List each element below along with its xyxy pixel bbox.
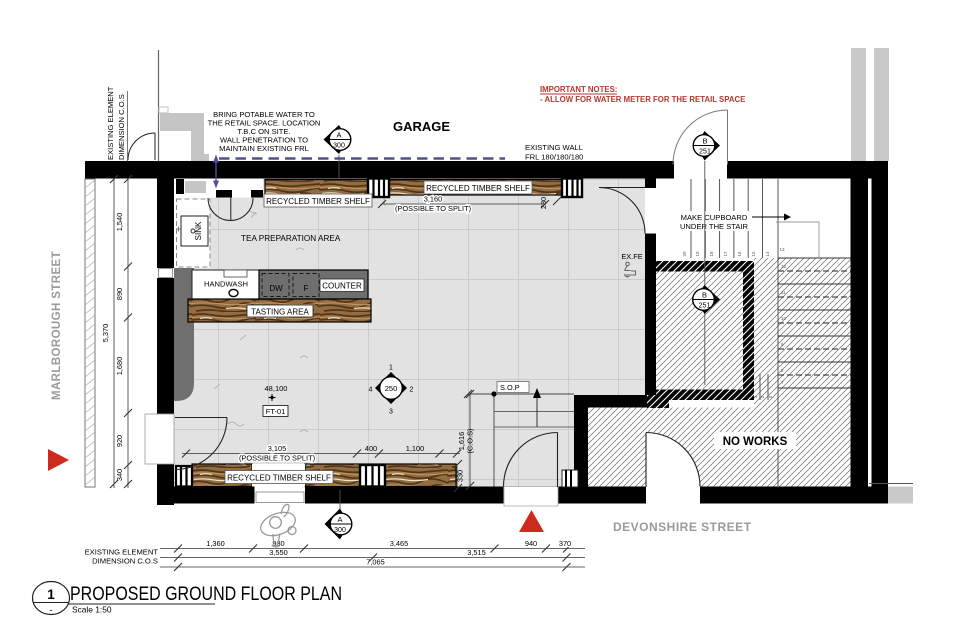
svg-text:EXISTING WALL: EXISTING WALL [525,143,583,152]
svg-text:EX.FE: EX.FE [621,252,642,261]
svg-text:920: 920 [115,435,124,447]
svg-text:MARLBOROUGH STREET: MARLBOROUGH STREET [51,251,63,400]
svg-text:16: 16 [737,251,742,257]
svg-text:1,680: 1,680 [115,357,124,376]
svg-text:300: 300 [333,143,345,150]
svg-text:5,370: 5,370 [101,324,110,343]
svg-text:300: 300 [334,527,346,534]
svg-text:Scale 1:50: Scale 1:50 [72,605,112,615]
svg-text:250: 250 [385,384,398,393]
svg-text:940: 940 [525,539,537,548]
svg-text:890: 890 [115,288,124,300]
svg-text:DW: DW [269,284,283,293]
svg-text:TASTING AREA: TASTING AREA [251,308,309,317]
svg-text:340: 340 [115,469,124,481]
svg-text:(POSSIBLE TO SPLIT): (POSSIBLE TO SPLIT) [395,204,471,213]
svg-text:DIMENSION C.O.S: DIMENSION C.O.S [92,557,158,566]
svg-text:EXISTING ELEMENT: EXISTING ELEMENT [85,548,159,557]
svg-text:1,540: 1,540 [115,213,124,232]
svg-text:3,160: 3,160 [424,195,443,204]
svg-text:A: A [336,131,341,140]
svg-text:18: 18 [709,251,714,257]
svg-text:1,360: 1,360 [206,539,225,548]
svg-text:S.O.P: S.O.P [500,383,520,392]
svg-text:PROPOSED GROUND FLOOR PLAN: PROPOSED GROUND FLOOR PLAN [70,583,342,605]
svg-text:RECYCLED TIMBER SHELF: RECYCLED TIMBER SHELF [266,197,370,206]
svg-text:400: 400 [365,444,377,453]
svg-text:1: 1 [389,365,393,372]
svg-text:TEA PREPARATION AREA: TEA PREPARATION AREA [241,234,341,243]
svg-text:3,105: 3,105 [268,444,287,453]
svg-text:230: 230 [539,197,548,209]
svg-text:3,550: 3,550 [269,548,288,557]
svg-text:12: 12 [781,264,787,269]
svg-text:370: 370 [559,539,571,548]
svg-text:IMPORTANT NOTES:: IMPORTANT NOTES: [540,85,617,94]
svg-text:14: 14 [765,251,770,257]
svg-text:13: 13 [779,247,785,252]
svg-text:F: F [304,284,309,293]
svg-text:3,515: 3,515 [467,548,486,557]
svg-text:7,065: 7,065 [366,558,385,567]
svg-text:RECYCLED TIMBER SHELF: RECYCLED TIMBER SHELF [227,474,331,483]
svg-text:11: 11 [781,290,786,295]
svg-text:-: - [50,605,53,615]
svg-text:19: 19 [695,251,700,257]
svg-text:17: 17 [723,251,728,257]
svg-text:10: 10 [781,316,787,321]
svg-text:48,100: 48,100 [265,384,288,393]
svg-text:330: 330 [456,470,465,482]
svg-text:COUNTER: COUNTER [322,282,362,291]
svg-text:B: B [702,137,707,146]
svg-text:UNDER THE STAIR: UNDER THE STAIR [680,222,749,231]
svg-text:MAINTAIN EXISTING FRL: MAINTAIN EXISTING FRL [219,144,309,153]
svg-text:15: 15 [751,251,756,257]
svg-text:A: A [337,515,342,524]
svg-text:(POSSIBLE TO SPLIT): (POSSIBLE TO SPLIT) [239,454,315,463]
svg-text:RECYCLED TIMBER SHELF: RECYCLED TIMBER SHELF [426,184,530,193]
svg-text:3: 3 [389,409,393,416]
svg-text:3,465: 3,465 [390,539,409,548]
svg-text:20: 20 [682,251,687,257]
svg-text:EXISTING ELEMENT: EXISTING ELEMENT [106,86,115,160]
svg-text:HANDWASH: HANDWASH [204,280,248,289]
svg-text:FT-01: FT-01 [266,407,286,416]
svg-text:(C.O.S): (C.O.S) [466,428,475,453]
svg-text:2: 2 [410,387,414,394]
svg-text:MAKE CUPBOARD: MAKE CUPBOARD [681,213,748,222]
svg-text:4: 4 [369,387,373,394]
svg-text:GARAGE: GARAGE [393,119,450,134]
svg-text:FRL 180/180/180: FRL 180/180/180 [525,153,583,162]
svg-text:NO WORKS: NO WORKS [723,436,788,448]
svg-text:251: 251 [699,149,711,156]
svg-text:SINK: SINK [194,221,203,240]
svg-text:1,100: 1,100 [406,444,425,453]
svg-text:1: 1 [47,587,55,602]
svg-text:- ALLOW FOR WATER METER FOR TH: - ALLOW FOR WATER METER FOR THE RETAIL S… [540,95,745,104]
svg-text:DEVONSHIRE STREET: DEVONSHIRE STREET [613,520,752,534]
svg-text:B: B [702,291,707,300]
svg-text:DIMENSION C.O.S: DIMENSION C.O.S [117,94,126,160]
svg-text:251: 251 [699,303,711,310]
